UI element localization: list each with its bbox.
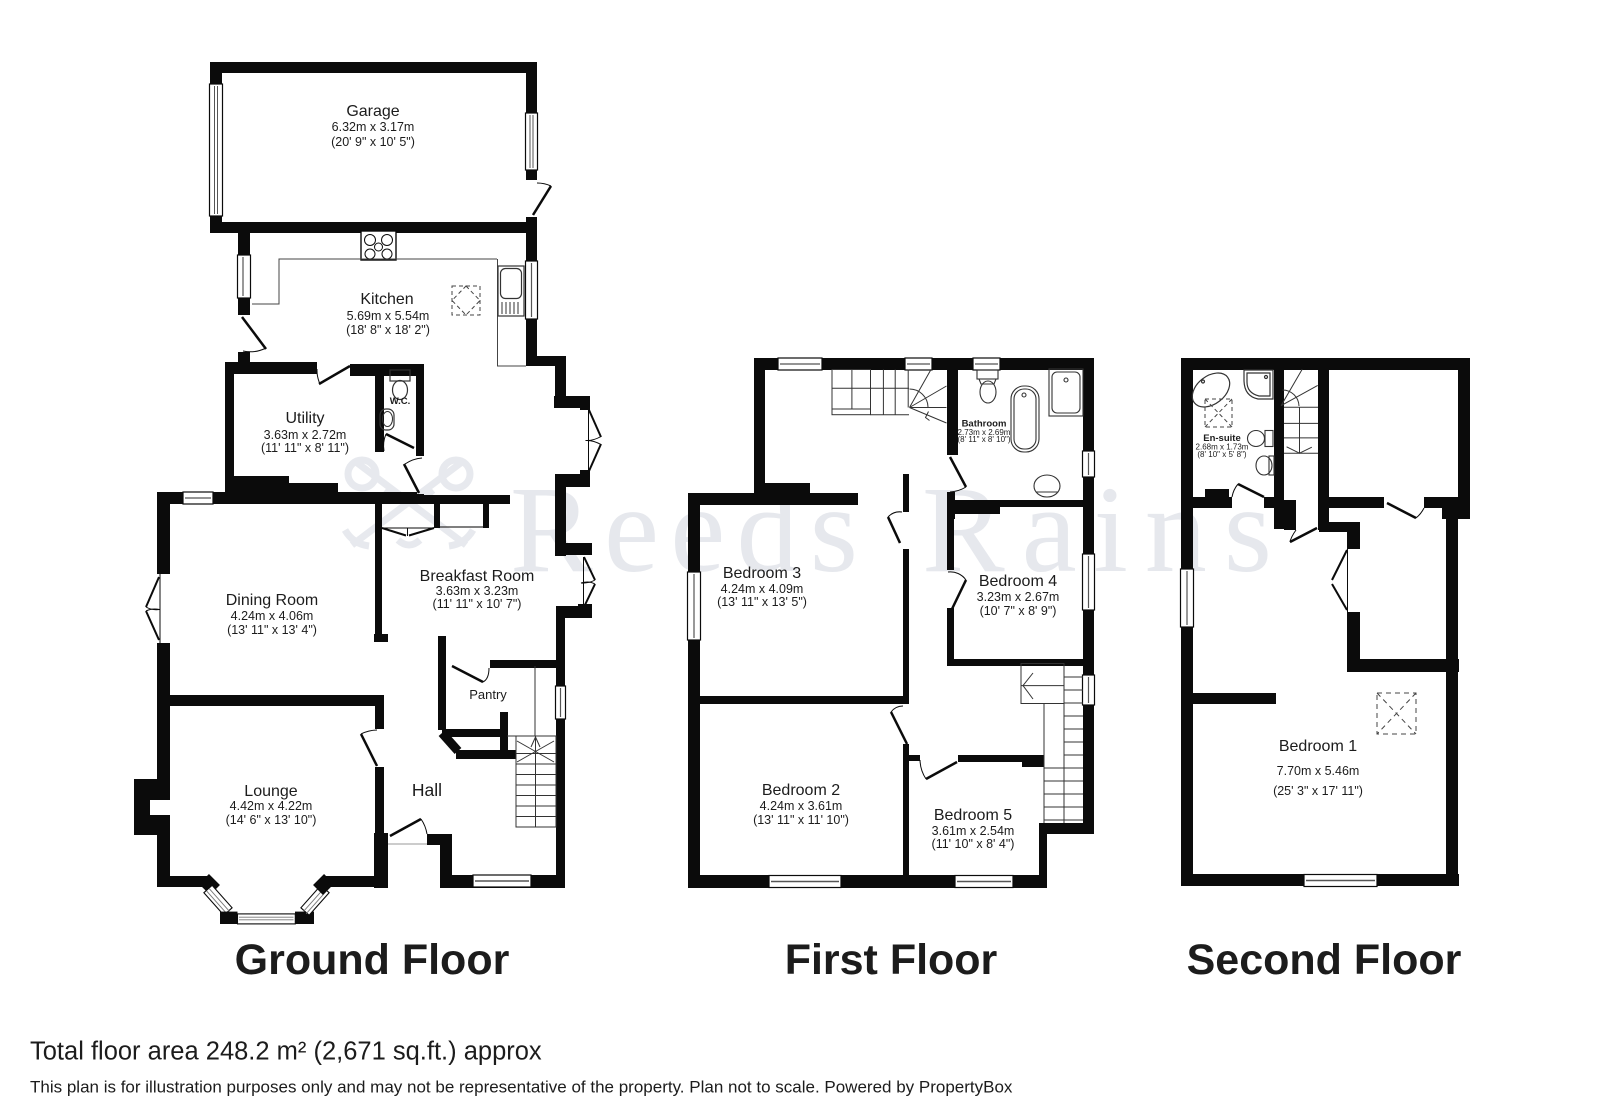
svg-text:(11' 11" x 10' 7"): (11' 11" x 10' 7"): [433, 597, 522, 611]
svg-text:Total floor area 248.2 m² (2,6: Total floor area 248.2 m² (2,671 sq.ft.)…: [30, 1038, 542, 1066]
svg-text:First Floor: First Floor: [785, 936, 998, 984]
svg-text:(11' 11" x 8' 11"): (11' 11" x 8' 11"): [261, 441, 349, 455]
svg-text:(13' 11" x 13' 4"): (13' 11" x 13' 4"): [227, 623, 317, 637]
svg-text:(8' 11" x 8' 10"): (8' 11" x 8' 10"): [957, 435, 1010, 444]
svg-text:Rains: Rains: [922, 461, 1272, 598]
svg-text:4.24m x 4.09m: 4.24m x 4.09m: [721, 582, 804, 596]
svg-text:Lounge: Lounge: [244, 783, 297, 800]
svg-text:Pantry: Pantry: [469, 687, 507, 702]
svg-text:Utility: Utility: [285, 410, 324, 427]
svg-text:(13' 11" x 11' 10"): (13' 11" x 11' 10"): [753, 813, 849, 827]
svg-text:7.70m x 5.46m: 7.70m x 5.46m: [1277, 764, 1360, 778]
svg-text:Hall: Hall: [412, 780, 442, 800]
svg-text:Kitchen: Kitchen: [360, 291, 413, 308]
svg-text:(8' 10" x 5' 8"): (8' 10" x 5' 8"): [1197, 450, 1247, 459]
svg-text:4.24m x 4.06m: 4.24m x 4.06m: [231, 609, 314, 623]
svg-text:Breakfast Room: Breakfast Room: [420, 568, 535, 585]
svg-text:3.63m x 2.72m: 3.63m x 2.72m: [264, 428, 347, 442]
svg-text:3.61m x 2.54m: 3.61m x 2.54m: [932, 824, 1015, 838]
svg-text:(18' 8" x 18' 2"): (18' 8" x 18' 2"): [346, 323, 430, 337]
svg-text:Bedroom 5: Bedroom 5: [934, 807, 1012, 824]
svg-text:4.24m x 3.61m: 4.24m x 3.61m: [760, 799, 843, 813]
svg-text:4.42m x 4.22m: 4.42m x 4.22m: [230, 799, 313, 813]
svg-text:Bedroom 3: Bedroom 3: [723, 565, 801, 582]
svg-text:Bedroom 1: Bedroom 1: [1279, 738, 1357, 755]
svg-text:3.63m x 3.23m: 3.63m x 3.23m: [436, 584, 519, 598]
svg-text:3.23m x 2.67m: 3.23m x 2.67m: [977, 590, 1060, 604]
svg-text:Dining Room: Dining Room: [226, 592, 318, 609]
svg-text:(14' 6" x 13' 10"): (14' 6" x 13' 10"): [226, 813, 317, 827]
svg-text:(20' 9" x 10' 5"): (20' 9" x 10' 5"): [331, 135, 415, 149]
svg-text:(13' 11" x 13' 5"): (13' 11" x 13' 5"): [717, 595, 807, 609]
svg-text:Garage: Garage: [346, 103, 399, 120]
svg-text:Ground Floor: Ground Floor: [235, 936, 510, 984]
svg-text:W.C.: W.C.: [390, 396, 411, 407]
svg-text:Bedroom 4: Bedroom 4: [979, 573, 1057, 590]
svg-text:(10' 7" x 8' 9"): (10' 7" x 8' 9"): [980, 604, 1057, 618]
svg-text:Bedroom 2: Bedroom 2: [762, 782, 840, 799]
svg-text:(11' 10" x 8' 4"): (11' 10" x 8' 4"): [932, 837, 1015, 851]
svg-text:5.69m x 5.54m: 5.69m x 5.54m: [347, 309, 430, 323]
svg-text:Second Floor: Second Floor: [1187, 936, 1462, 984]
svg-text:This plan is for illustration: This plan is for illustration purposes o…: [30, 1078, 1013, 1097]
svg-text:(25' 3" x 17' 11"): (25' 3" x 17' 11"): [1273, 784, 1363, 798]
svg-text:6.32m x 3.17m: 6.32m x 3.17m: [332, 120, 415, 134]
